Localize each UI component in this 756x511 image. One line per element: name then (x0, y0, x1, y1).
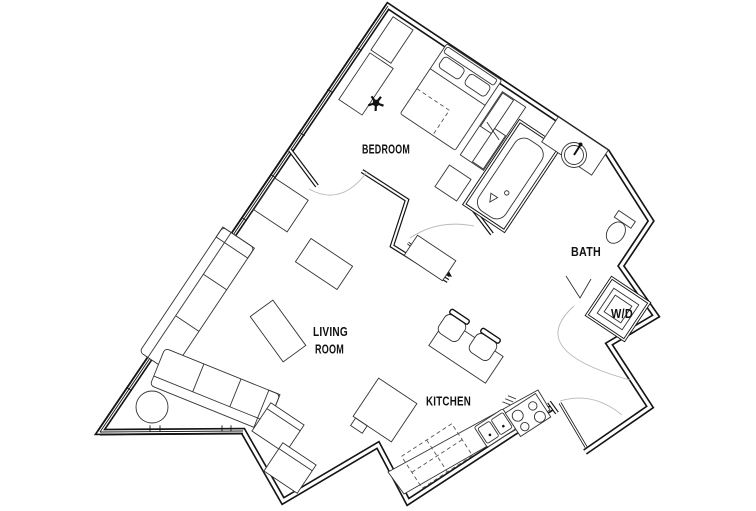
bedroom-label: BEDROOM (362, 143, 410, 157)
vanity-sink (562, 143, 587, 168)
window-sill-outer-edge (100, 434, 243, 435)
laundry-label: W/D (611, 307, 633, 321)
kitchen-label: KITCHEN (426, 395, 471, 409)
living-room-label-line1: LIVING (313, 325, 348, 339)
living-room-label-line2: ROOM (315, 343, 344, 357)
side-table (136, 391, 168, 423)
floor-plan: BEDROOM BATH W/D LIVING ROOM KITCHEN (0, 0, 756, 511)
floor-plan-drawing: BEDROOM BATH W/D LIVING ROOM KITCHEN (0, 0, 756, 511)
bath-label: BATH (571, 245, 601, 259)
